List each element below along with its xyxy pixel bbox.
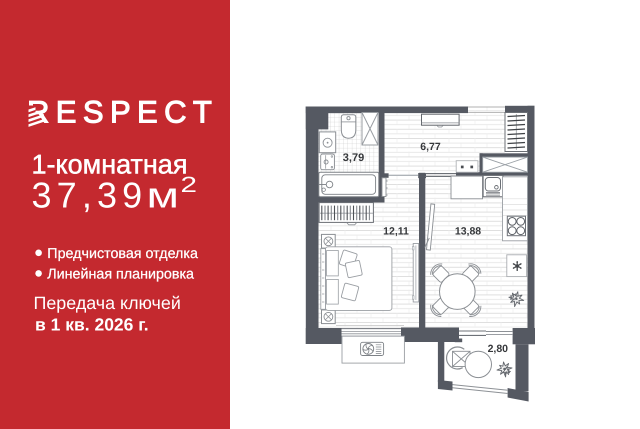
svg-text:2: 2	[181, 172, 198, 197]
svg-text:Передача ключей: Передача ключей	[34, 293, 181, 313]
svg-text:Предчистовая отделка: Предчистовая отделка	[47, 246, 198, 262]
svg-text:2,80: 2,80	[488, 343, 509, 355]
svg-text:Линейная планировка: Линейная планировка	[47, 267, 194, 283]
svg-text:в 1 кв. 2026 г.: в 1 кв. 2026 г.	[35, 315, 149, 335]
svg-text:3,79: 3,79	[343, 152, 364, 164]
svg-text:RESPECT: RESPECT	[27, 95, 218, 130]
svg-text:37,39: 37,39	[32, 175, 148, 216]
svg-text:6,77: 6,77	[420, 141, 441, 153]
svg-text:13,88: 13,88	[455, 226, 481, 238]
svg-text:м: м	[147, 175, 180, 216]
svg-text:12,11: 12,11	[383, 226, 409, 238]
